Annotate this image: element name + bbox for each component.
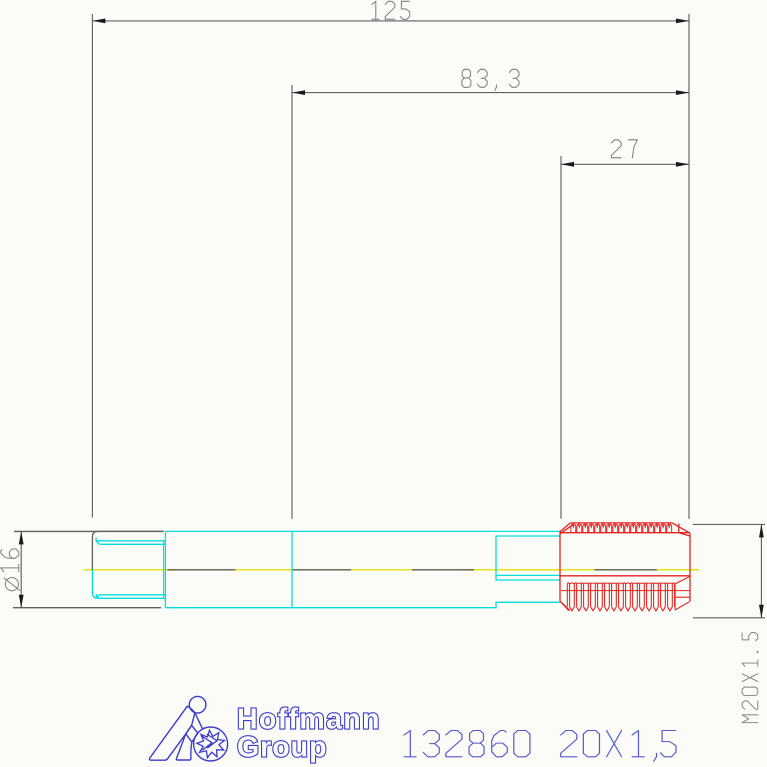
- svg-text:Group: Group: [237, 732, 328, 764]
